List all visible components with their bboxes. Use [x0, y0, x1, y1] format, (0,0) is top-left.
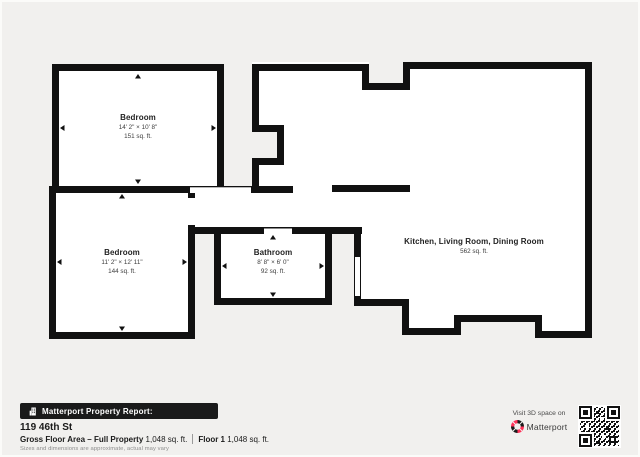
property-address: 119 46th St	[20, 422, 72, 433]
report-badge: Matterport Property Report:	[20, 403, 218, 419]
floor-plan-drawing	[2, 2, 640, 457]
matterport-brand-text: Matterport	[527, 422, 568, 432]
floor-area-summary: Gross Floor Area – Full Property 1,048 s…	[20, 434, 269, 444]
visit-3d-text: Visit 3D space on	[502, 410, 576, 417]
matterport-logo-icon	[511, 420, 524, 433]
gross-area-label: Gross Floor Area – Full Property	[20, 435, 143, 444]
qr-code	[578, 405, 621, 448]
floor-value: 1,048 sq. ft.	[225, 435, 269, 444]
visit-3d-block: Visit 3D space on Matterport	[502, 410, 576, 433]
building-icon	[29, 407, 37, 416]
report-badge-label: Matterport Property Report:	[42, 407, 153, 416]
disclaimer-text: Sizes and dimensions are approximate, ac…	[20, 446, 169, 452]
floor-label: Floor 1	[198, 435, 225, 444]
gross-area-value: 1,048 sq. ft.	[143, 435, 187, 444]
floor-plan-page: Bedroom 14' 2" × 10' 8" 151 sq. ft. Bedr…	[0, 0, 640, 457]
divider	[192, 434, 193, 444]
